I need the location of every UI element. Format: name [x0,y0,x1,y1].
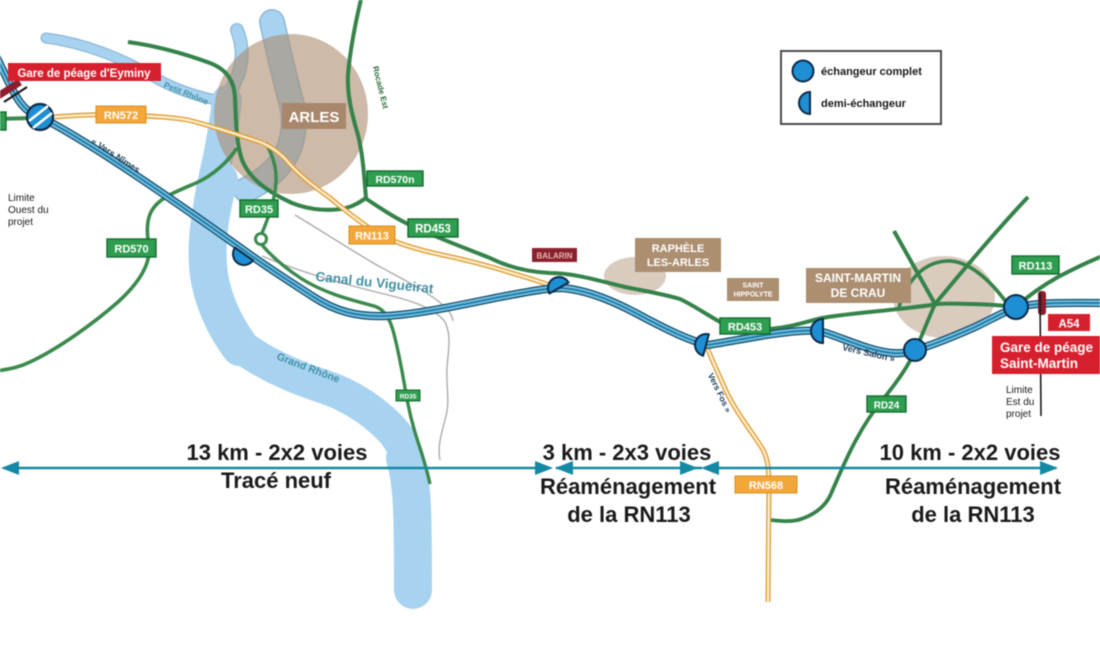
svg-text:Limite: Limite [1006,385,1033,396]
svg-text:10 km - 2x2 voies: 10 km - 2x2 voies [879,440,1060,465]
svg-text:RD35: RD35 [245,204,273,216]
svg-text:Saint-Martin: Saint-Martin [1000,356,1078,371]
svg-text:projet: projet [1006,409,1031,420]
svg-text:Gare de péage: Gare de péage [1000,340,1094,355]
svg-text:BALARIN: BALARIN [537,252,573,261]
svg-text:SAINT: SAINT [743,283,765,290]
svg-text:RN568: RN568 [749,480,783,492]
svg-text:RD35: RD35 [400,394,417,401]
svg-text:LES-ARLES: LES-ARLES [647,257,709,269]
svg-text:RD113: RD113 [1019,261,1053,273]
svg-text:Réaménagement: Réaménagement [540,474,717,499]
svg-text:RD453: RD453 [415,224,451,236]
svg-text:RN113: RN113 [355,231,389,243]
svg-text:Ouest du: Ouest du [8,205,49,216]
svg-text:ARLES: ARLES [289,109,340,126]
svg-text:RD570n: RD570n [375,174,414,186]
svg-text:3 km - 2x3 voies: 3 km - 2x3 voies [543,440,712,465]
svg-text:HIPPOLYTE: HIPPOLYTE [733,292,772,299]
svg-text:SAINT-MARTIN: SAINT-MARTIN [815,271,901,285]
svg-text:Limite: Limite [8,193,35,204]
svg-text:RD570: RD570 [114,244,148,256]
svg-text:projet: projet [8,217,33,228]
svg-text:RD453: RD453 [728,322,762,334]
svg-text:RAPHÈLE: RAPHÈLE [652,242,705,255]
svg-text:13 km - 2x2 voies: 13 km - 2x2 voies [186,440,367,465]
svg-text:de la RN113: de la RN113 [911,502,1035,527]
svg-text:Gare de péage d'Eyminy: Gare de péage d'Eyminy [17,68,151,80]
svg-text:Est du: Est du [1006,397,1034,408]
svg-text:Réaménagement: Réaménagement [885,474,1062,499]
svg-text:demi-échangeur: demi-échangeur [821,98,907,110]
svg-text:RN572: RN572 [104,110,138,122]
svg-text:de la RN113: de la RN113 [567,502,691,527]
svg-text:échangeur complet: échangeur complet [821,66,922,78]
svg-text:Tracé neuf: Tracé neuf [221,468,332,493]
svg-text:DE CRAU: DE CRAU [831,286,886,300]
svg-text:RD24: RD24 [874,401,900,412]
svg-text:A54: A54 [1058,319,1080,331]
